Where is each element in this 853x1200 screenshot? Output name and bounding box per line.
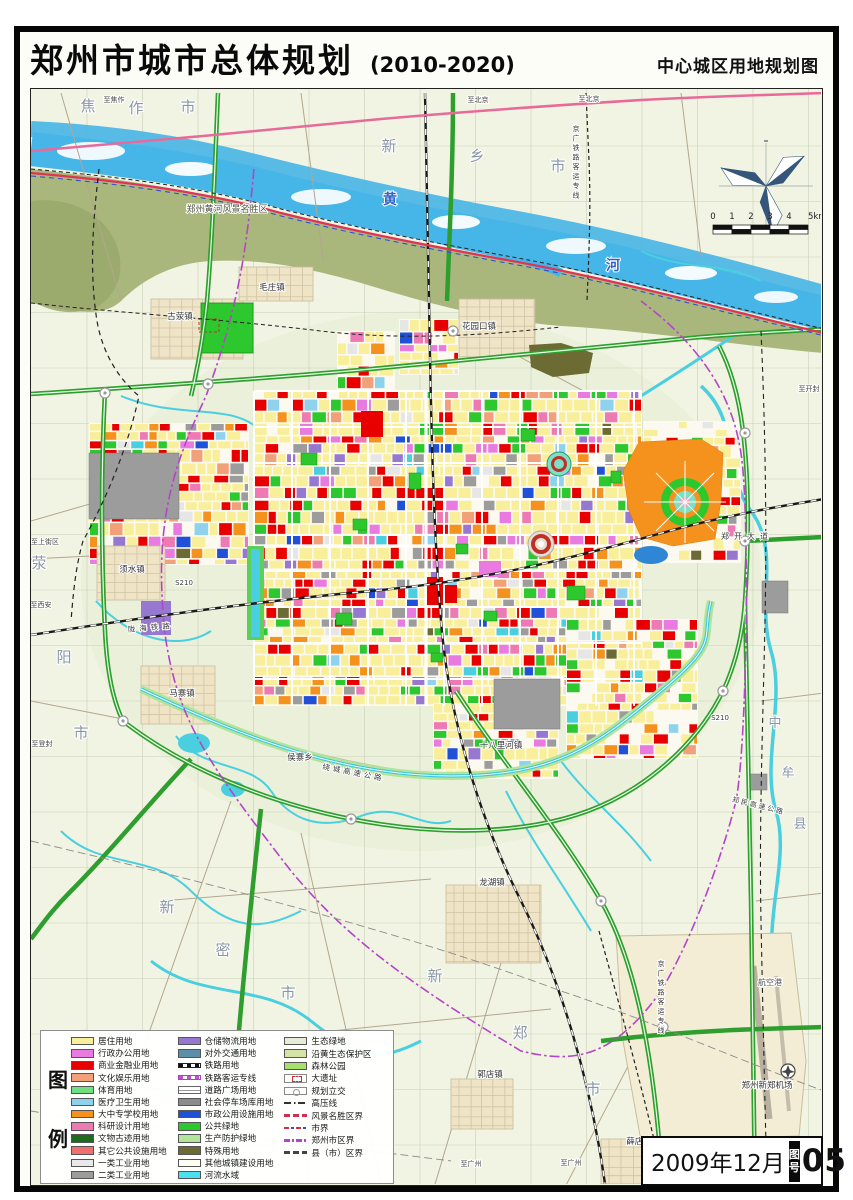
legend-label: 其他城镇建设用地 [205, 1157, 274, 1169]
cbd-ring-longzihu [644, 461, 726, 543]
map-label: 运 [573, 173, 580, 181]
legend-swatch-fill [178, 1037, 201, 1046]
map-label: 专 [658, 1016, 665, 1025]
legend-item: 道路广场用地 [178, 1084, 285, 1096]
legend-swatch-fill [178, 1159, 201, 1168]
legend-label: 医疗卫生用地 [98, 1096, 150, 1108]
legend-column: 仓储物流用地对外交通用地铁路用地铁路客运专线道路广场用地社会停车场库用地市政公用… [178, 1035, 285, 1181]
legend-swatch-fill [284, 1062, 307, 1071]
map-label: 新 [159, 898, 174, 916]
map-label: S210 [175, 579, 193, 587]
legend-swatch-fill [71, 1061, 94, 1070]
map-label: 至广州 [561, 1158, 582, 1167]
legend-item: 市界 [284, 1122, 391, 1134]
ring-feature-south [528, 531, 554, 557]
map-label: 须水镇 [119, 564, 145, 575]
titlebar: 郑州市城市总体规划 (2010-2020) 中心城区用地规划图 [30, 34, 823, 86]
legend-item: 风景名胜区界 [284, 1109, 391, 1121]
map-label: 毛庄镇 [259, 282, 285, 293]
legend-label: 二类工业用地 [98, 1169, 150, 1181]
map-label: 荥 [31, 554, 46, 572]
legend-item: 生产防护绿地 [178, 1132, 285, 1144]
legend-item: 二类工业用地 [71, 1169, 178, 1181]
map-canvas: 012345km 焦作市新乡市黄河荥阳市新密市新郑市中牟县郑州黄河风景名胜区古荥… [30, 88, 823, 1186]
map-label: 京 [573, 124, 580, 133]
legend-label: 社会停车场库用地 [205, 1096, 274, 1108]
legend-item: 森林公园 [284, 1060, 391, 1072]
legend-label: 对外交通用地 [205, 1047, 257, 1059]
map-label: S210 [711, 714, 729, 722]
map-label: 郑 [512, 1024, 527, 1042]
lake [634, 546, 668, 564]
legend-swatch-fill [71, 1159, 94, 1168]
map-label: 客 [658, 997, 665, 1006]
legend-swatch-fill [178, 1146, 201, 1155]
legend-item: 其他城镇建设用地 [178, 1157, 285, 1169]
legend-label: 沿黄生态保护区 [311, 1048, 371, 1060]
legend-swatch-fill [178, 1110, 201, 1119]
legend-swatch-site [284, 1074, 307, 1083]
map-label: 侯寨乡 [287, 752, 313, 763]
legend-item: 郑州市区界 [284, 1134, 391, 1146]
legend-item: 科研设计用地 [71, 1120, 178, 1132]
map-label: 至北京 [579, 94, 600, 103]
map-label: 铁 [573, 143, 580, 152]
legend-label: 大中专学校用地 [98, 1108, 158, 1120]
map-label: 线 [658, 1026, 665, 1035]
map-label: 中 [768, 716, 781, 731]
legend-swatch-fill [71, 1073, 94, 1082]
map-label: 古荥镇 [167, 311, 193, 322]
legend-label: 郑州市区界 [311, 1134, 354, 1146]
legend-item: 文物古迹用地 [71, 1132, 178, 1144]
legend-swatch-fill [178, 1098, 201, 1107]
map-label: 马寨镇 [169, 688, 195, 699]
map-label: 京 [658, 959, 665, 968]
legend-swatch-dashdot [284, 1139, 307, 1142]
legend-label: 铁路客运专线 [205, 1072, 257, 1084]
legend-item: 仓储物流用地 [178, 1035, 285, 1047]
legend-column: 生态绿地沿黄生态保护区森林公园大遗址规划立交高压线风景名胜区界市界郑州市区界县（… [284, 1035, 391, 1181]
legend-swatch-fill [178, 1134, 201, 1143]
map-label: 客 [573, 162, 580, 171]
map-label: 至开封 [799, 384, 820, 393]
scalebar-label: 0 [710, 212, 715, 222]
map-label: 乡 [469, 147, 484, 165]
sheet-title-block: 2009年12月 图号 05 [641, 1136, 823, 1186]
legend-item: 铁路用地 [178, 1059, 285, 1071]
map-label: 路 [658, 988, 665, 997]
map-label: 焦 [80, 97, 95, 115]
map-label: 广 [658, 969, 665, 978]
map-label: 至登封 [32, 739, 53, 748]
legend-swatch-line [284, 1151, 307, 1154]
map-label: 新 [427, 967, 442, 985]
planning-map: 012345km 焦作市新乡市黄河荥阳市新密市新郑市中牟县郑州黄河风景名胜区古荥… [31, 89, 821, 1184]
legend-item: 行政办公用地 [71, 1047, 178, 1059]
legend-item: 文化娱乐用地 [71, 1072, 178, 1084]
legend-item: 大中专学校用地 [71, 1108, 178, 1120]
map-label: 牟 [781, 766, 794, 781]
legend-label: 市政公用设施用地 [205, 1108, 274, 1120]
legend-swatch-fill [71, 1134, 94, 1143]
legend-label: 公共绿地 [205, 1120, 239, 1132]
legend-label: 特殊用地 [205, 1145, 239, 1157]
map-label: 至焦作 [104, 95, 125, 104]
map-label: 至西安 [31, 600, 52, 609]
legend-swatch-fill [71, 1122, 94, 1131]
scalebar-label: 2 [748, 212, 753, 222]
sheet-date: 2009年12月 [651, 1144, 785, 1178]
legend-item: 大遗址 [284, 1072, 391, 1084]
legend-item: 公共绿地 [178, 1120, 285, 1132]
map-label: 专 [573, 181, 580, 190]
map-label: 至广州 [461, 1159, 482, 1168]
legend-label: 高压线 [311, 1097, 337, 1109]
legend-swatch-ic [284, 1087, 307, 1096]
legend-item: 一类工业用地 [71, 1157, 178, 1169]
map-label: 至北京 [468, 95, 489, 104]
map-label: 市 [550, 157, 565, 175]
legend-swatch-railm [178, 1075, 201, 1080]
legend-swatch-fill [284, 1049, 307, 1058]
legend: 图例 居住用地行政办公用地商业金融业用地文化娱乐用地体育用地医疗卫生用地大中专学… [40, 1030, 394, 1184]
legend-label: 居住用地 [98, 1035, 132, 1047]
map-label: 市 [73, 724, 88, 742]
scalebar-label: 3 [767, 212, 772, 222]
legend-item: 社会停车场库用地 [178, 1096, 285, 1108]
legend-swatch-fill [178, 1171, 201, 1180]
legend-label: 市界 [311, 1122, 328, 1134]
map-label: 黄 [383, 191, 397, 208]
legend-item: 市政公用设施用地 [178, 1108, 285, 1120]
legend-label: 一类工业用地 [98, 1157, 150, 1169]
legend-swatch-fill [71, 1146, 94, 1155]
legend-column: 居住用地行政办公用地商业金融业用地文化娱乐用地体育用地医疗卫生用地大中专学校用地… [71, 1035, 178, 1181]
legend-swatch-fill [71, 1086, 94, 1095]
title-period: (2010-2020) [370, 53, 515, 77]
page-title: 郑州市城市总体规划 [30, 34, 354, 82]
legend-label: 河流水域 [205, 1169, 239, 1181]
legend-label: 其它公共设施用地 [98, 1145, 167, 1157]
map-label: 铁 [658, 978, 665, 987]
legend-heading: 图例 [45, 1035, 71, 1181]
legend-swatch-fill [71, 1049, 94, 1058]
map-label: 市 [180, 98, 195, 116]
legend-item: 特殊用地 [178, 1145, 285, 1157]
legend-label: 仓储物流用地 [205, 1035, 257, 1047]
map-label: 航空港 [758, 977, 782, 987]
legend-label: 风景名胜区界 [311, 1110, 363, 1122]
map-label: 十八里河镇 [480, 740, 523, 751]
legend-label: 铁路用地 [205, 1059, 239, 1071]
legend-swatch-fill [71, 1037, 94, 1046]
map-label: 广 [573, 134, 580, 143]
legend-label: 森林公园 [311, 1060, 345, 1072]
sheet-number: 05 [802, 1143, 847, 1179]
legend-label: 文化娱乐用地 [98, 1072, 150, 1084]
legend-swatch-fill [178, 1122, 201, 1131]
legend-label: 县（市）区界 [311, 1147, 363, 1159]
legend-swatch-fill [178, 1049, 201, 1058]
map-label: 阳 [56, 648, 71, 666]
map-label: 花园口镇 [462, 321, 497, 332]
scalebar-label: 4 [786, 212, 791, 222]
legend-heading-char: 图 [48, 1064, 68, 1093]
sheet-number-label: 图号 [789, 1141, 800, 1182]
map-label: 县 [793, 817, 806, 832]
legend-label: 生态绿地 [311, 1035, 345, 1047]
map-label: 路 [573, 153, 580, 162]
legend-swatch-line [284, 1114, 307, 1117]
map-label: 郑州新郑机场 [741, 1080, 792, 1091]
map-label: 市 [280, 984, 295, 1002]
legend-label: 行政办公用地 [98, 1047, 150, 1059]
map-label: 郑开大道 [721, 531, 773, 541]
legend-item: 其它公共设施用地 [71, 1145, 178, 1157]
legend-swatch-hv [284, 1102, 307, 1105]
legend-item: 体育用地 [71, 1084, 178, 1096]
legend-label: 文物古迹用地 [98, 1132, 150, 1144]
legend-item: 医疗卫生用地 [71, 1096, 178, 1108]
legend-item: 高压线 [284, 1097, 391, 1109]
scalebar-label: 1 [729, 212, 734, 222]
map-label: 新 [381, 137, 396, 155]
legend-item: 对外交通用地 [178, 1047, 285, 1059]
map-label: 郑州黄河风景名胜区 [186, 203, 267, 215]
legend-item: 县（市）区界 [284, 1147, 391, 1159]
map-label: 河 [606, 257, 620, 274]
map-label: 至上街区 [31, 537, 59, 546]
map-label: 线 [573, 191, 580, 200]
legend-label: 科研设计用地 [98, 1120, 150, 1132]
legend-swatch-road [178, 1086, 201, 1095]
map-label: 市 [585, 1080, 600, 1098]
map-label: 运 [658, 1008, 665, 1016]
legend-label: 规划立交 [311, 1085, 345, 1097]
legend-label: 生产防护绿地 [205, 1132, 257, 1144]
legend-item: 生态绿地 [284, 1035, 391, 1047]
legend-heading-char: 例 [48, 1123, 68, 1152]
legend-item: 规划立交 [284, 1085, 391, 1097]
title-subtitle: 中心城区用地规划图 [657, 52, 819, 77]
legend-swatch-rail [178, 1063, 201, 1068]
legend-swatch-fill [284, 1037, 307, 1046]
map-label: 密 [215, 941, 230, 959]
legend-label: 道路广场用地 [205, 1084, 257, 1096]
map-label: 龙湖镇 [479, 877, 505, 888]
map-label: 作 [128, 99, 143, 117]
legend-item: 居住用地 [71, 1035, 178, 1047]
legend-swatch-fill [71, 1110, 94, 1119]
scalebar-label: 5km [808, 212, 821, 222]
legend-item: 沿黄生态保护区 [284, 1047, 391, 1059]
legend-label: 商业金融业用地 [98, 1059, 158, 1071]
map-label: 郭店镇 [477, 1069, 503, 1080]
legend-item: 河流水域 [178, 1169, 285, 1181]
legend-item: 铁路客运专线 [178, 1072, 285, 1084]
airport-icon [781, 1064, 795, 1078]
legend-swatch-fill [71, 1171, 94, 1180]
cbd-ring-ruyihu [547, 452, 571, 476]
legend-swatch-redblue [284, 1127, 307, 1130]
legend-label: 体育用地 [98, 1084, 132, 1096]
legend-swatch-fill [71, 1098, 94, 1107]
legend-label: 大遗址 [311, 1072, 337, 1084]
legend-item: 商业金融业用地 [71, 1059, 178, 1071]
